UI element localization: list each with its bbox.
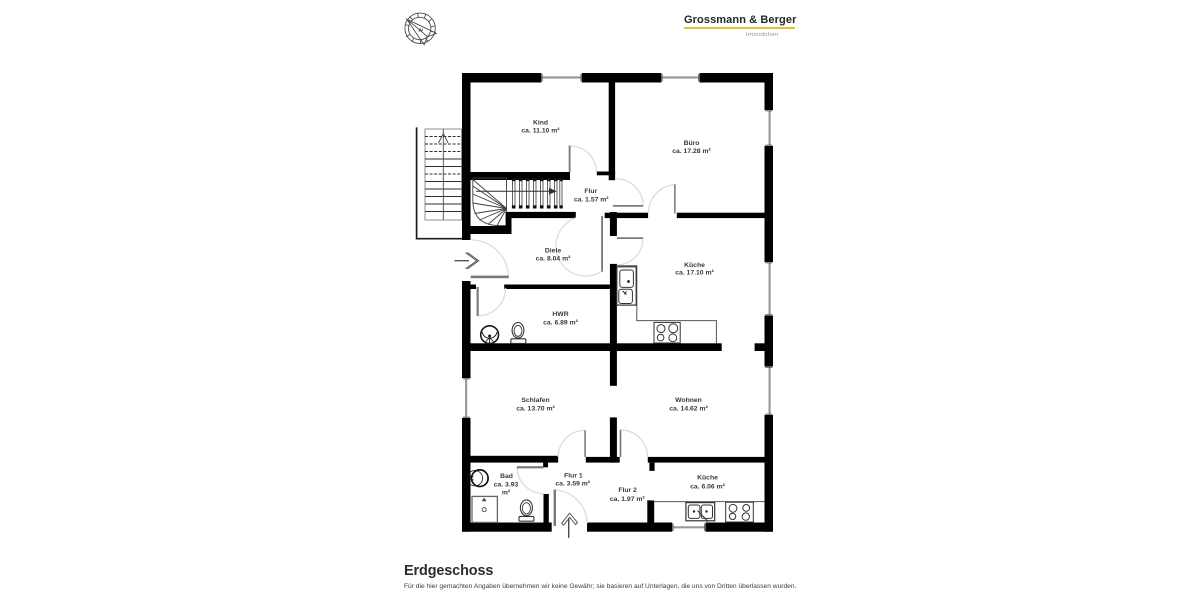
- svg-text:ca. 3.93: ca. 3.93: [494, 481, 519, 488]
- svg-text:Diele: Diele: [545, 247, 561, 254]
- svg-text:ca. 3.59 m²: ca. 3.59 m²: [555, 481, 590, 488]
- svg-text:ca. 14.62 m²: ca. 14.62 m²: [669, 405, 708, 412]
- svg-text:Küche: Küche: [684, 262, 705, 269]
- svg-text:Flur 2: Flur 2: [618, 487, 637, 494]
- svg-text:ca. 6.06 m²: ca. 6.06 m²: [690, 484, 725, 491]
- svg-text:Küche: Küche: [697, 474, 718, 481]
- svg-text:Flur 1: Flur 1: [564, 473, 583, 480]
- svg-text:ca. 6.89 m²: ca. 6.89 m²: [543, 320, 578, 327]
- svg-text:Flur: Flur: [584, 188, 597, 195]
- svg-text:ca. 11.10 m²: ca. 11.10 m²: [521, 128, 560, 135]
- svg-text:ca. 1.97 m²: ca. 1.97 m²: [610, 496, 645, 503]
- svg-text:ca. 8.04 m²: ca. 8.04 m²: [536, 256, 571, 263]
- svg-text:ca. 13.70 m²: ca. 13.70 m²: [516, 405, 555, 412]
- svg-text:ca. 1.57 m²: ca. 1.57 m²: [574, 196, 609, 203]
- svg-text:Wohnen: Wohnen: [675, 397, 702, 404]
- svg-text:m²: m²: [502, 490, 511, 497]
- svg-text:Büro: Büro: [684, 140, 700, 147]
- svg-text:HWR: HWR: [552, 311, 568, 318]
- svg-text:Kind: Kind: [533, 120, 548, 127]
- svg-text:ca. 17.28 m²: ca. 17.28 m²: [672, 148, 711, 155]
- svg-text:ca. 17.10 m²: ca. 17.10 m²: [675, 270, 714, 277]
- svg-text:Bad: Bad: [500, 473, 513, 480]
- svg-text:Schlafen: Schlafen: [521, 397, 549, 404]
